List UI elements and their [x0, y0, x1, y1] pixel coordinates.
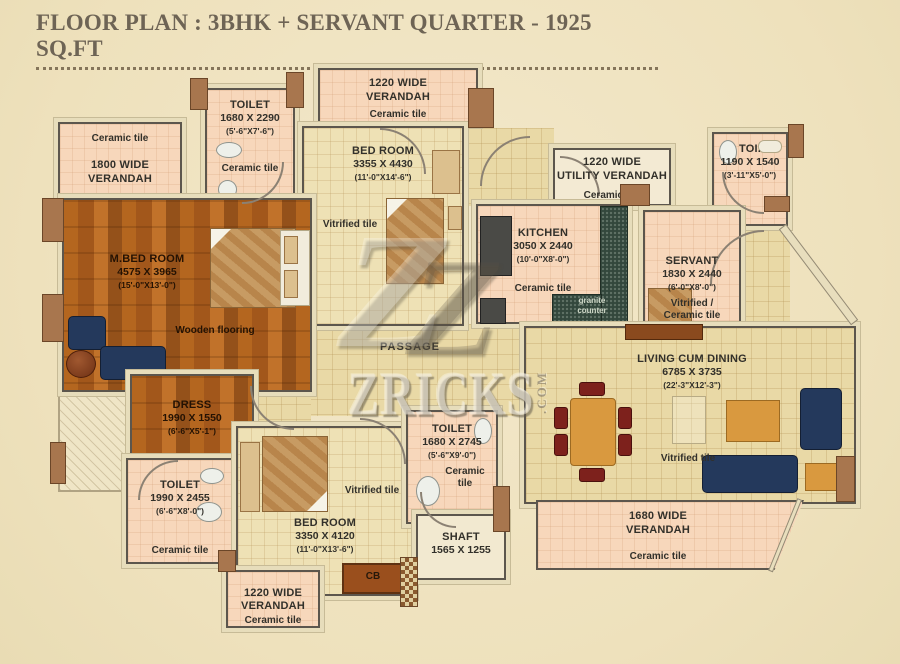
room-name-label: LIVING CUM DINING 6785 X 3735 (22'-3"X12… [602, 352, 782, 391]
room-dim-ft-label: (5'-6"X9'-0") [408, 450, 496, 461]
room-dim-ft-label: (3'-11"X5'-0") [714, 170, 786, 181]
room-name-label: SERVANT 1830 X 2440 (6'-0"X8'-0") [645, 254, 739, 293]
counter-label-line: counter [562, 306, 622, 316]
room-servant: SERVANT 1830 X 2440 (6'-0"X8'-0") Vitrif… [643, 210, 741, 324]
dining-table-icon [570, 398, 616, 466]
room-name-line: 1680 WIDE [578, 509, 738, 523]
floor-type-line: tile [436, 478, 494, 490]
dining-chair-icon [554, 434, 568, 456]
blanket-fold [211, 229, 231, 249]
room-name-line: 1220 WIDE [320, 76, 476, 90]
room-dim-label: 3050 X 2440 [488, 240, 598, 254]
room-name-label: TOILET 1680 X 2745 (5'-6"X9'-0") [408, 422, 496, 461]
checker-pattern [400, 557, 418, 607]
room-name-line: TOILET [207, 98, 293, 112]
floor-type-label: Ceramic tile [555, 189, 669, 202]
floor-type-label: Ceramic tile [228, 614, 318, 627]
floor-type-label: Ceramic tile [60, 132, 180, 145]
room-toilet-mbed: TOILET 1990 X 2455 (6'-6"X8'-0") Ceramic… [126, 458, 234, 564]
room-name-line: 1800 WIDE [60, 158, 180, 172]
hatch-area [58, 392, 128, 492]
room-name-line: DRESS [132, 398, 252, 412]
floor-type-line: Ceramic tile [645, 310, 739, 322]
dining-chair-icon [618, 434, 632, 456]
room-name-line: VERANDAH [320, 90, 476, 104]
room-name-line: VERANDAH [60, 172, 180, 186]
room-name-label: M.BED ROOM 4575 X 3965 (15'-0"X13'-0") [72, 252, 222, 291]
room-dim-label: 1680 X 2290 [207, 112, 293, 126]
room-name-line: BED ROOM [238, 516, 412, 530]
room-verandah-1800: Ceramic tile 1800 WIDE VERANDAH [58, 122, 182, 204]
room-dim-label: 1190 X 1540 [714, 156, 786, 170]
blanket-fold [307, 491, 327, 511]
room-dim-label: 6785 X 3735 [602, 366, 782, 380]
room-dim-ft-label: (6'-0"X8'-0") [645, 282, 739, 293]
blanket-fold [387, 199, 407, 219]
room-dim-label: 1680 X 2745 [408, 436, 496, 450]
room-name-line: BED ROOM [304, 144, 462, 158]
room-name-label: 1680 WIDE VERANDAH [578, 509, 738, 538]
room-name-line: LIVING CUM DINING [602, 352, 782, 366]
room-name-line: TOILET [128, 478, 232, 492]
room-dim-label: 1990 X 1550 [132, 412, 252, 426]
room-dim-label: 4575 X 3965 [72, 266, 222, 280]
side-table-icon [805, 463, 839, 491]
floor-type-label: Vitrified tile [310, 218, 390, 231]
wall-pillar [788, 124, 804, 158]
room-name-label: 1220 WIDE VERANDAH [320, 76, 476, 105]
wall-pillar [836, 456, 855, 502]
floor-type-label: Ceramic tile [207, 162, 293, 175]
dining-chair-icon [579, 468, 605, 482]
room-living-dining: LIVING CUM DINING 6785 X 3735 (22'-3"X12… [524, 326, 856, 504]
rug-outline [672, 396, 706, 444]
floor-type-label: Ceramic tile [578, 550, 738, 563]
room-name-line: M.BED ROOM [72, 252, 222, 266]
wall-pillar [50, 442, 66, 484]
floor-type-label: Ceramic tile [320, 108, 476, 121]
wall-pillar [468, 88, 494, 128]
wall-pillar [42, 294, 64, 342]
room-name-line: TOILET [408, 422, 496, 436]
room-dim-label: 1990 X 2455 [128, 492, 232, 506]
room-name-label: 1220 WIDE UTILITY VERANDAH [555, 155, 669, 184]
floor-type-label: Ceramic tile [488, 282, 598, 295]
room-name-line: UTILITY VERANDAH [555, 169, 669, 183]
cb-label: CB [366, 571, 380, 582]
room-dim-label: 3350 X 4120 [238, 530, 412, 544]
dining-chair-icon [618, 407, 632, 429]
room-name-label: 1800 WIDE VERANDAH [60, 158, 180, 187]
room-verandah-1220-top: 1220 WIDE VERANDAH Ceramic tile [318, 68, 478, 124]
floor-type-label: Vitrified tile [638, 452, 738, 465]
room-name-line: SERVANT [645, 254, 739, 268]
room-dim-ft-label: (6'-6"X8'-0") [128, 506, 232, 517]
counter-label: granite counter [562, 296, 622, 315]
room-dim-ft-label: (6'-6"X5'-1") [132, 426, 252, 437]
room-kitchen: KITCHEN 3050 X 2440 (10'-0"X8'-0") Ceram… [476, 204, 628, 324]
sink-unit-icon [480, 298, 506, 324]
room-name-label: 1220 WIDE VERANDAH [228, 587, 318, 612]
room-name-label: BED ROOM 3355 X 4430 (11'-0"X14'-6") [304, 144, 462, 183]
pillow [284, 270, 298, 298]
tv-console-icon [625, 324, 703, 340]
room-dim-ft-label: (22'-3"X12'-3") [602, 380, 782, 391]
cb-box: CB [342, 563, 404, 594]
room-dim-ft-label: (11'-0"X13'-6") [238, 544, 412, 555]
room-dim-label: 1830 X 2440 [645, 268, 739, 282]
room-name-line: 1220 WIDE [555, 155, 669, 169]
room-dim-ft-label: (15'-0"X13'-0") [72, 280, 222, 291]
room-name-line: SHAFT [418, 530, 504, 544]
room-dim-ft-label: (11'-0"X14'-6") [304, 172, 462, 183]
wall-pillar [190, 78, 208, 110]
pillow [284, 236, 298, 264]
bedside-table-icon [448, 206, 462, 230]
coffee-table-icon [726, 400, 780, 442]
floor-plan-canvas: FLOOR PLAN : 3BHK + SERVANT QUARTER - 19… [0, 0, 900, 664]
diagonal-wall [779, 224, 858, 325]
room-utility-verandah: 1220 WIDE UTILITY VERANDAH Ceramic tile [553, 148, 671, 206]
room-verandah-1220-bottom: 1220 WIDE VERANDAH Ceramic tile [226, 570, 320, 628]
bed-icon [262, 436, 328, 512]
room-bedroom-top: BED ROOM 3355 X 4430 (11'-0"X14'-6") Vit… [302, 126, 464, 326]
door-arc [360, 418, 406, 464]
floor-type-line: Vitrified / [645, 298, 739, 310]
floor-type-label: Wooden flooring [140, 324, 290, 337]
wardrobe-icon [240, 442, 260, 512]
wall-pillar [620, 184, 650, 206]
room-name-line: 1220 WIDE [228, 587, 318, 600]
wall-pillar [42, 198, 64, 242]
room-name-line: TOI. [714, 142, 786, 156]
room-name-line: VERANDAH [228, 600, 318, 613]
floor-type-label: Ceramic tile [128, 544, 232, 557]
room-dim-label: 1565 X 1255 [418, 544, 504, 558]
floor-type-label: Vitrified tile [332, 484, 412, 497]
room-name-line: KITCHEN [488, 226, 598, 240]
room-dim-ft-label: (5'-6"X7'-6") [207, 126, 293, 137]
round-table-icon [66, 350, 96, 378]
passage-floor [302, 324, 524, 416]
dining-chair-icon [554, 407, 568, 429]
room-name-label: KITCHEN 3050 X 2440 (10'-0"X8'-0") [488, 226, 598, 265]
floor-type-line: Ceramic [436, 466, 494, 478]
passage-label: PASSAGE [362, 340, 458, 354]
room-name-label: TOI. 1190 X 1540 (3'-11"X5'-0") [714, 142, 786, 181]
room-master-bedroom: M.BED ROOM 4575 X 3965 (15'-0"X13'-0") W… [62, 198, 312, 392]
room-dim-ft-label: (10'-0"X8'-0") [488, 254, 598, 265]
page-title: FLOOR PLAN : 3BHK + SERVANT QUARTER - 19… [36, 10, 658, 70]
sofa-icon [800, 388, 842, 450]
room-name-label: SHAFT 1565 X 1255 [418, 530, 504, 558]
room-name-label: BED ROOM 3350 X 4120 (11'-0"X13'-6") [238, 516, 412, 555]
wall-pillar [286, 72, 304, 108]
floor-type-label: Vitrified / Ceramic tile [645, 298, 739, 321]
counter-label-line: granite [562, 296, 622, 306]
washbasin-icon [216, 142, 242, 158]
wc-icon [218, 180, 237, 199]
armchair-icon [68, 316, 106, 350]
wall-pillar [493, 486, 510, 532]
room-dim-label: 3355 X 4430 [304, 158, 462, 172]
room-name-label: TOILET 1990 X 2455 (6'-6"X8'-0") [128, 478, 232, 517]
room-name-line: VERANDAH [578, 523, 738, 537]
room-name-label: TOILET 1680 X 2290 (5'-6"X7'-6") [207, 98, 293, 137]
wall-pillar [764, 196, 790, 212]
floor-type-label: Ceramic tile [436, 466, 494, 489]
room-verandah-1680: 1680 WIDE VERANDAH Ceramic tile [536, 500, 804, 570]
room-name-label: DRESS 1990 X 1550 (6'-6"X5'-1") [132, 398, 252, 437]
bed-icon [386, 198, 444, 284]
wall-pillar [218, 550, 236, 572]
